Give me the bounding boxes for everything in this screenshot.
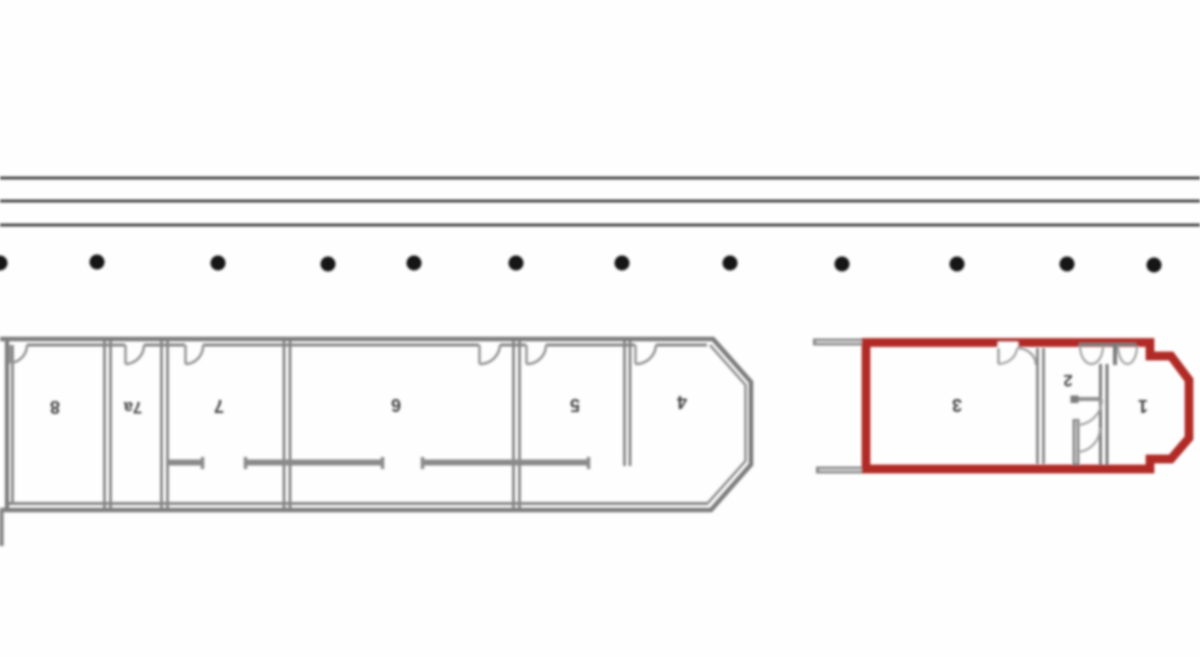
svg-text:8: 8 bbox=[50, 397, 60, 417]
svg-text:6: 6 bbox=[391, 395, 401, 415]
svg-text:7a: 7a bbox=[123, 398, 142, 416]
svg-text:1: 1 bbox=[1138, 396, 1148, 416]
svg-text:4: 4 bbox=[677, 392, 687, 412]
svg-text:2: 2 bbox=[1063, 371, 1072, 389]
svg-text:7: 7 bbox=[214, 396, 224, 416]
svg-text:3: 3 bbox=[952, 395, 962, 415]
svg-text:5: 5 bbox=[570, 395, 580, 415]
